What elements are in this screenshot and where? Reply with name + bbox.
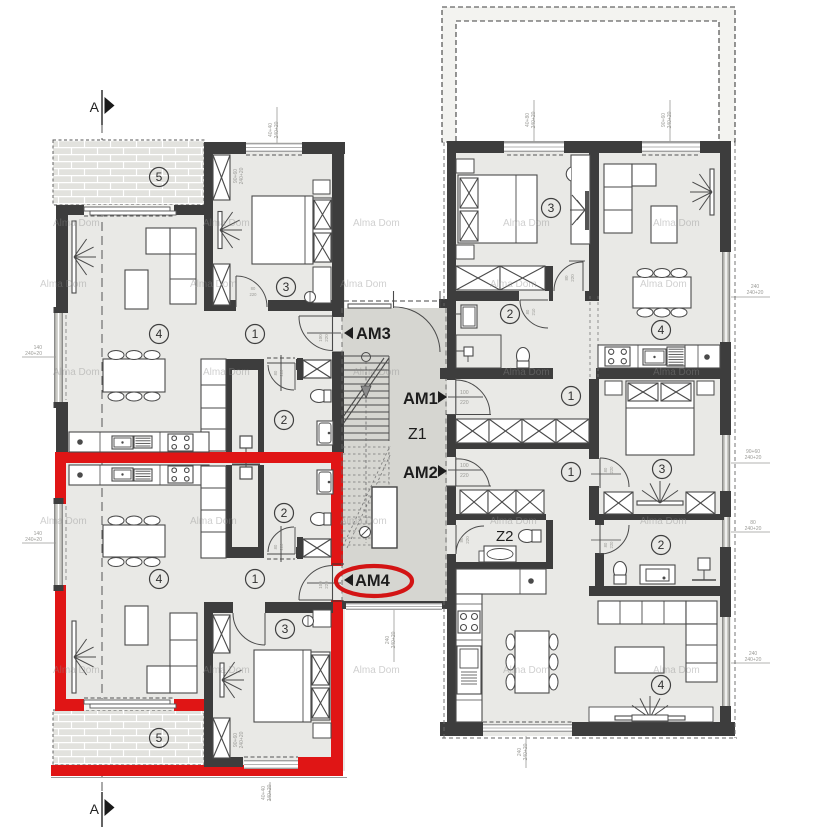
svg-text:Alma Dom: Alma Dom (353, 665, 400, 676)
svg-text:240+20: 240+20 (523, 743, 529, 760)
svg-text:Alma Dom: Alma Dom (340, 516, 387, 527)
svg-text:Alma Dom: Alma Dom (653, 665, 700, 676)
svg-text:Alma Dom: Alma Dom (490, 279, 537, 290)
svg-text:80: 80 (603, 542, 608, 547)
svg-text:220: 220 (324, 334, 329, 342)
svg-text:220: 220 (324, 581, 329, 589)
svg-text:220: 220 (460, 473, 469, 479)
svg-text:240+20: 240+20 (239, 167, 245, 184)
svg-text:Alma Dom: Alma Dom (53, 367, 100, 378)
svg-text:240+20: 240+20 (391, 631, 397, 648)
svg-text:80: 80 (525, 309, 530, 314)
svg-text:3: 3 (283, 280, 290, 294)
svg-text:80: 80 (251, 286, 256, 291)
svg-text:240+20: 240+20 (25, 351, 42, 357)
svg-text:80: 80 (564, 275, 569, 281)
svg-text:240+20: 240+20 (667, 111, 673, 128)
svg-text:240+20: 240+20 (25, 537, 42, 543)
svg-text:Alma Dom: Alma Dom (203, 367, 250, 378)
svg-text:220: 220 (460, 400, 469, 406)
svg-text:A: A (90, 99, 100, 115)
svg-text:240+20: 240+20 (747, 290, 764, 296)
svg-text:Z2: Z2 (496, 528, 514, 545)
svg-text:220: 220 (465, 536, 470, 544)
svg-text:240+20: 240+20 (239, 731, 245, 748)
svg-text:5: 5 (156, 731, 163, 745)
svg-text:4: 4 (156, 572, 163, 586)
svg-text:220: 220 (279, 543, 284, 551)
svg-text:80: 80 (603, 467, 608, 472)
svg-text:Alma Dom: Alma Dom (40, 279, 87, 290)
svg-text:Alma Dom: Alma Dom (203, 218, 250, 229)
svg-text:240+20: 240+20 (745, 455, 762, 461)
svg-text:100: 100 (460, 390, 469, 396)
svg-text:220: 220 (609, 466, 614, 474)
svg-text:AM2: AM2 (403, 464, 438, 482)
svg-text:Alma Dom: Alma Dom (640, 279, 687, 290)
svg-text:5: 5 (156, 170, 163, 184)
svg-text:Alma Dom: Alma Dom (653, 367, 700, 378)
svg-text:Alma Dom: Alma Dom (503, 367, 550, 378)
svg-text:1: 1 (252, 327, 259, 341)
svg-text:1: 1 (568, 465, 575, 479)
svg-text:Alma Dom: Alma Dom (640, 516, 687, 527)
svg-text:2: 2 (281, 506, 288, 520)
svg-text:220: 220 (279, 369, 284, 377)
svg-text:80: 80 (273, 544, 278, 549)
svg-text:AM4: AM4 (355, 572, 391, 590)
svg-text:220: 220 (609, 541, 614, 549)
svg-text:4: 4 (658, 323, 665, 337)
svg-text:80: 80 (273, 370, 278, 375)
svg-text:210: 210 (531, 308, 536, 316)
svg-text:Alma Dom: Alma Dom (190, 516, 237, 527)
svg-text:3: 3 (548, 201, 555, 215)
svg-text:240+20: 240+20 (531, 111, 537, 128)
svg-text:100: 100 (318, 334, 323, 342)
svg-text:1: 1 (568, 389, 575, 403)
svg-text:220: 220 (570, 274, 575, 282)
svg-text:AM1: AM1 (403, 390, 438, 408)
svg-text:100: 100 (318, 581, 323, 589)
svg-text:4: 4 (658, 678, 665, 692)
svg-text:240+20: 240+20 (267, 784, 273, 801)
svg-text:Alma Dom: Alma Dom (353, 367, 400, 378)
svg-text:Alma Dom: Alma Dom (53, 218, 100, 229)
svg-text:A: A (90, 801, 100, 817)
svg-text:Alma Dom: Alma Dom (503, 218, 550, 229)
svg-text:4: 4 (156, 327, 163, 341)
svg-text:AM3: AM3 (356, 325, 391, 343)
svg-text:2: 2 (507, 307, 514, 321)
svg-text:100: 100 (460, 463, 469, 469)
svg-text:Alma Dom: Alma Dom (353, 218, 400, 229)
svg-text:220: 220 (250, 292, 258, 297)
svg-text:Alma Dom: Alma Dom (340, 279, 387, 290)
svg-text:Alma Dom: Alma Dom (490, 516, 537, 527)
svg-text:Alma Dom: Alma Dom (203, 665, 250, 676)
svg-text:3: 3 (282, 622, 289, 636)
svg-text:1: 1 (252, 572, 259, 586)
svg-text:Z1: Z1 (408, 426, 427, 443)
svg-text:240+20: 240+20 (274, 121, 280, 138)
svg-text:2: 2 (281, 413, 288, 427)
svg-text:2: 2 (658, 538, 665, 552)
svg-text:80: 80 (459, 537, 464, 543)
svg-text:Alma Dom: Alma Dom (40, 516, 87, 527)
svg-text:240+20: 240+20 (745, 657, 762, 663)
svg-text:Alma Dom: Alma Dom (503, 665, 550, 676)
svg-text:3: 3 (659, 462, 666, 476)
svg-text:Alma Dom: Alma Dom (653, 218, 700, 229)
svg-text:Alma Dom: Alma Dom (190, 279, 237, 290)
svg-text:Alma Dom: Alma Dom (53, 665, 100, 676)
svg-text:240+20: 240+20 (745, 526, 762, 532)
